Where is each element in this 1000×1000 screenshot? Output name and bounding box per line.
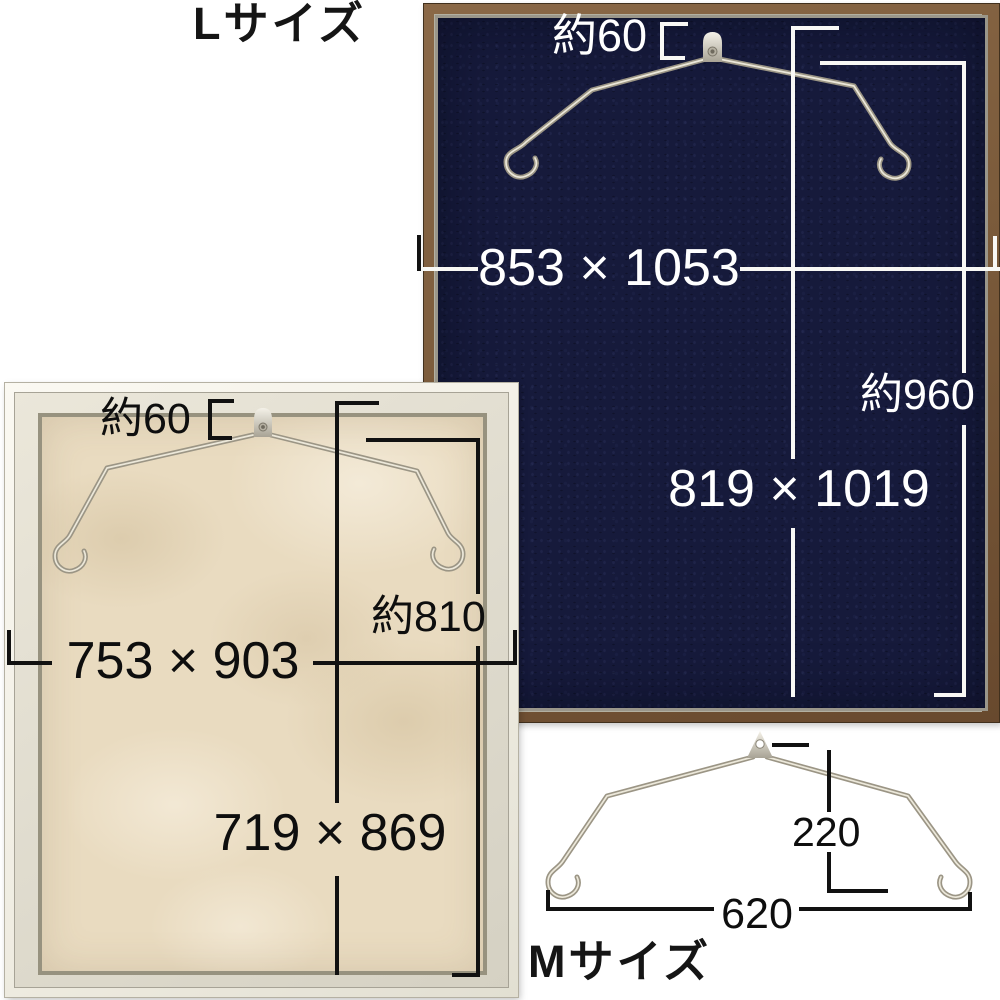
l-hook-offset-bracket-top xyxy=(660,22,688,26)
l-hang-dim-line xyxy=(962,425,966,697)
l-outer-dim-line xyxy=(421,267,478,271)
m-outer-dim-line xyxy=(7,661,52,665)
m-hook-offset-value: 約60 xyxy=(100,396,191,442)
m-hook-offset-bracket-bottom xyxy=(208,436,232,440)
m-hang-dim-line xyxy=(476,438,480,594)
hanger-width-tick-left xyxy=(546,890,550,911)
m-hang-dim-bracket-top xyxy=(366,438,480,442)
m-hanging-height-value: 約810 xyxy=(371,594,486,640)
l-hang-dim-bracket-top xyxy=(820,61,966,65)
m-size-label: Mサイズ xyxy=(528,938,711,987)
m-outer-dim-tick-right xyxy=(513,630,517,665)
m-hang-dim-bracket-bottom xyxy=(452,973,480,977)
m-outer-dim-tick-left xyxy=(7,630,11,665)
hanger-drop-value: 220 xyxy=(792,810,860,854)
hanger-drop-dim-line xyxy=(827,852,831,891)
m-inner-dimensions-value: 719 × 869 xyxy=(214,805,447,861)
l-hook-offset-value: 約60 xyxy=(552,12,647,61)
l-outer-dimensions-value: 853 × 1053 xyxy=(478,240,740,296)
m-inner-dim-line xyxy=(335,401,339,803)
hanger-drop-dim-bottom xyxy=(827,889,888,893)
m-hook-offset-bracket xyxy=(208,399,212,440)
l-outer-dim-tick-left xyxy=(417,235,421,271)
l-frame-navy-panel xyxy=(438,18,985,708)
l-inner-dimensions-value: 819 × 1019 xyxy=(668,461,930,517)
l-inner-dim-line xyxy=(791,528,795,697)
l-outer-dim-line xyxy=(740,267,1000,271)
m-hang-dim-line xyxy=(476,646,480,977)
hanger-width-dim-line xyxy=(546,907,714,911)
hanger-drop-dim-line xyxy=(827,750,831,812)
hanger-width-tick-right xyxy=(968,892,972,911)
hanger-drop-dim-top xyxy=(772,743,809,747)
m-size-hanger-wire xyxy=(548,731,970,897)
m-frame-beige-panel xyxy=(38,413,487,975)
m-inner-dim-line xyxy=(335,876,339,975)
l-inner-dim-line xyxy=(791,26,795,459)
l-hang-dim-bracket-bottom xyxy=(934,693,966,697)
l-hook-offset-bracket xyxy=(660,22,664,60)
l-hang-dim-line xyxy=(962,61,966,373)
l-hook-offset-bracket-bottom xyxy=(660,56,685,60)
m-outer-dimensions-value: 753 × 903 xyxy=(67,633,300,689)
hanger-hook-tab-icon xyxy=(747,731,773,758)
hanger-width-value: 620 xyxy=(721,891,793,937)
m-outer-dim-line xyxy=(313,661,517,665)
l-outer-dim-tick-right xyxy=(993,236,997,271)
l-size-label: Lサイズ xyxy=(193,0,366,49)
l-hanging-height-value: 約960 xyxy=(860,372,975,418)
l-inner-dim-bracket-top xyxy=(791,26,839,30)
m-hook-offset-bracket-top xyxy=(208,399,234,403)
product-dimension-diagram: Lサイズ xyxy=(0,0,1000,1000)
m-frame-photo xyxy=(5,383,518,997)
hanger-width-dim-line xyxy=(799,907,972,911)
m-inner-dim-bracket-top xyxy=(335,401,379,405)
